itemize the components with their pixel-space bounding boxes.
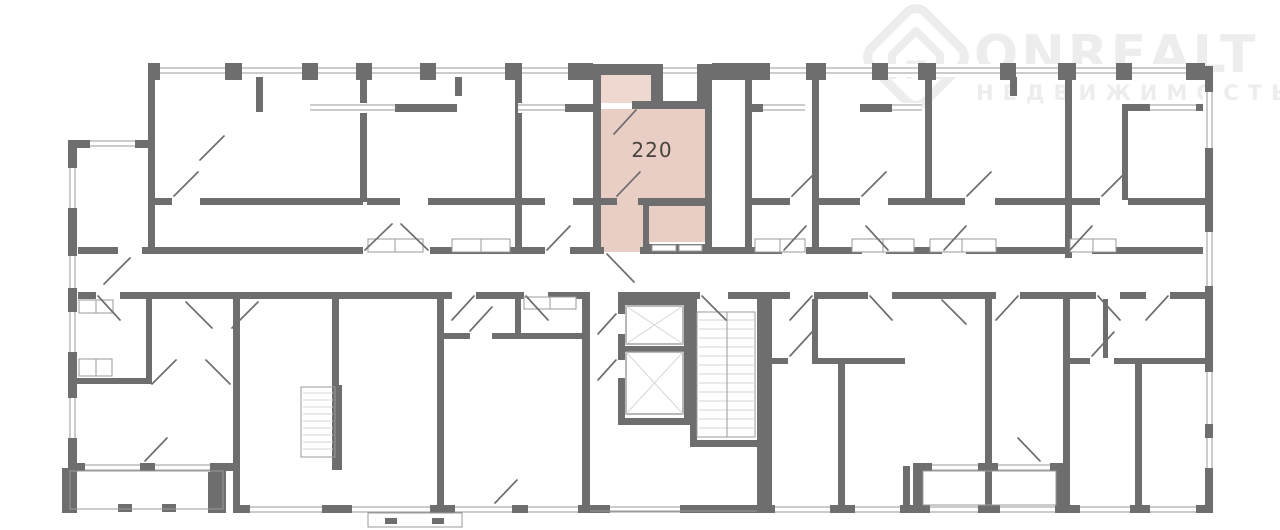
balcony-left [70,471,223,509]
staircase-secondary [301,387,335,457]
watermark-subtitle: НЕДВИЖИМОСТЬ [976,81,1280,105]
staircase-main [697,312,755,437]
floor-plan: ONREALT НЕДВИЖИМОСТЬ 220 [0,0,1280,530]
unit-label: 220 [631,138,672,162]
unit-220-balcony [600,75,651,103]
onrealt-logo-icon [862,3,969,110]
unit-220-bathroom [650,206,705,242]
interior-details [70,239,1116,527]
floorplan-canvas: ONREALT НЕДВИЖИМОСТЬ 220 [0,0,1280,530]
balcony-center [368,513,462,527]
elevator-core [626,306,683,414]
